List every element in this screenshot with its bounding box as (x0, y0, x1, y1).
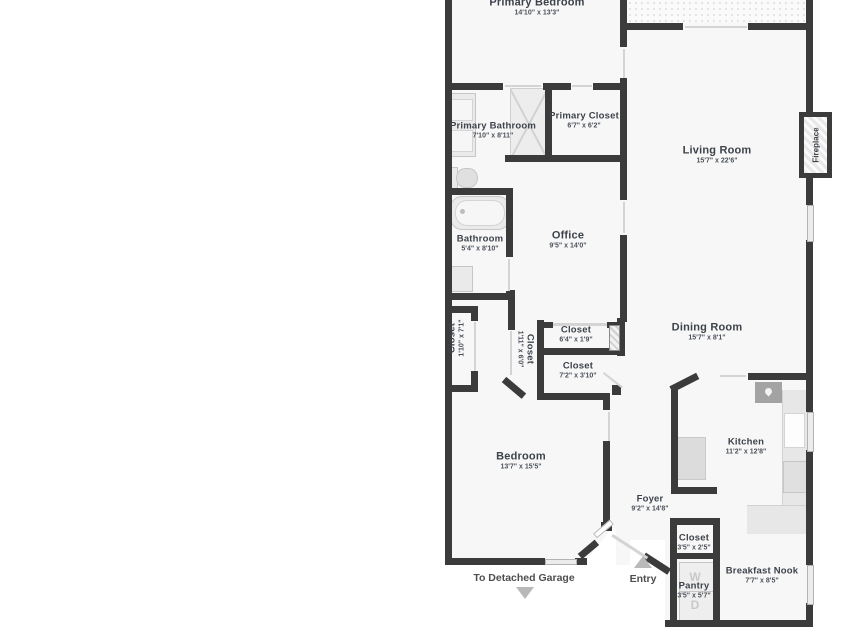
room-label-primary-closet: Primary Closet 6'7" x 6'2" (549, 112, 619, 131)
window (807, 565, 814, 605)
room-label-foyer: Foyer 9'2" x 14'8" (631, 495, 668, 514)
toilet-bowl-icon (456, 168, 478, 188)
room-label-hall-closet-mid: Closet 1'11" x 6'0" (516, 331, 535, 368)
wall-segment (537, 393, 609, 400)
wall-segment (671, 487, 717, 494)
room-label-foyer-closet: Closet 3'5" x 2'5" (677, 534, 710, 553)
wall-segment (806, 603, 813, 627)
floor-plan: W D Fireplace (0, 0, 843, 632)
wall-segment (665, 620, 813, 627)
room-label-living-room: Living Room 15'7" x 22'6" (683, 145, 752, 166)
closet-door (474, 322, 476, 371)
door-opening (505, 85, 541, 87)
room-label-pantry: Pantry 3'5" x 5'7" (677, 582, 710, 601)
room-label-primary-bedroom: Primary Bedroom 14'10" x 13'3" (489, 0, 584, 17)
entry-arrow-icon (634, 556, 652, 568)
wall-segment (544, 322, 553, 328)
wall-segment (505, 155, 627, 162)
stove-icon (783, 461, 807, 493)
wall-segment (448, 293, 510, 300)
garage-label: To Detached Garage (473, 572, 574, 584)
fireplace-label: Fireplace (812, 127, 821, 162)
wall-segment (445, 83, 503, 90)
door-opening (608, 412, 610, 441)
room-label-breakfast-nook: Breakfast Nook 7'7" x 8'5" (726, 567, 799, 586)
wall-segment (670, 553, 677, 627)
wall-segment (506, 195, 513, 257)
kitchen-counter-icon (747, 505, 806, 534)
room-label-bedroom: Bedroom 13'7" x 15'5" (496, 451, 546, 472)
wall-segment (603, 441, 610, 527)
door-opening (508, 259, 510, 291)
slider-door (685, 26, 747, 28)
wall-segment (671, 390, 678, 490)
door-opening (572, 85, 592, 87)
faucet-icon (460, 209, 465, 214)
sink-icon (451, 99, 473, 121)
entry-label: Entry (630, 573, 657, 585)
window (545, 559, 577, 565)
wall-segment (806, 450, 813, 565)
patio-area (627, 0, 806, 23)
room-label-kitchen: Kitchen 11'2" x 12'8" (726, 438, 767, 457)
wall-segment (543, 83, 571, 90)
door-opening (720, 375, 746, 377)
window (807, 205, 814, 242)
window (807, 412, 814, 452)
door-opening (623, 202, 625, 233)
wall-segment (620, 23, 683, 30)
wall-segment (537, 320, 544, 400)
room-label-hall-closet-left: Closet 1'10" x 7'1" (448, 319, 467, 356)
closet-door (510, 331, 512, 375)
wall-segment (748, 23, 806, 30)
wall-segment (471, 306, 478, 321)
wall-segment (445, 385, 478, 392)
kitchen-island-icon (677, 437, 706, 480)
wall-segment (713, 518, 720, 627)
wall-segment (593, 83, 627, 90)
wall-segment (806, 240, 813, 412)
garage-arrow-icon (516, 587, 534, 599)
room-label-primary-bathroom: Primary Bathroom 7'10" x 8'11" (450, 122, 536, 141)
room-label-hall-closet-top: Closet 6'4" x 1'9" (559, 326, 592, 345)
room-label-bathroom: Bathroom 5'4" x 8'10" (457, 235, 503, 254)
wall-segment (806, 0, 813, 112)
wall-segment (620, 0, 627, 47)
wall-segment (806, 178, 813, 205)
room-label-hall-closet-bottom: Closet 7'2" x 3'10" (559, 362, 596, 381)
sink-icon (449, 266, 473, 292)
kitchen-sink-icon (784, 413, 805, 448)
wall-segment (508, 290, 515, 330)
wall-segment (445, 188, 513, 195)
door-opening (623, 49, 625, 78)
bifold-door (609, 325, 620, 351)
wall-segment (620, 235, 627, 322)
wall-segment (670, 553, 720, 559)
wall-segment (445, 558, 545, 565)
room-label-office: Office 9'5" x 14'0" (549, 230, 586, 251)
room-label-dining-room: Dining Room 15'7" x 8'1" (672, 322, 743, 343)
wall-segment (748, 373, 806, 380)
